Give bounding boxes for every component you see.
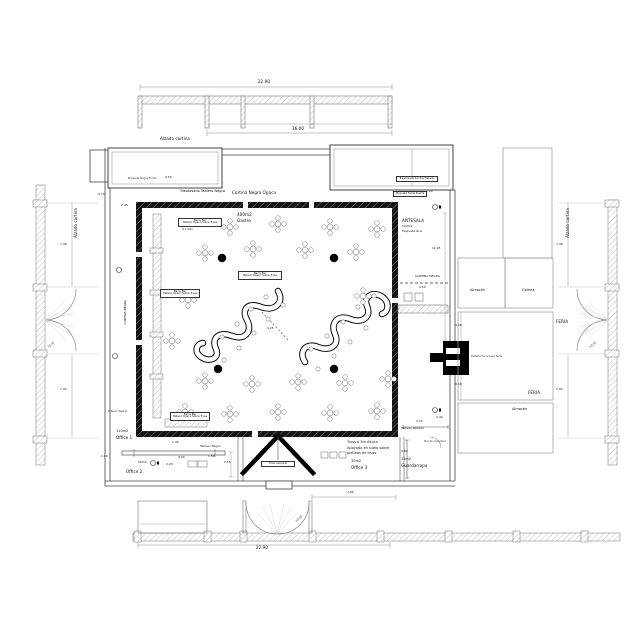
dim-bottom-width: 22.90 (256, 546, 268, 551)
label-alzado-cortina-right: Alzado cortina (566, 208, 571, 238)
label-moqueta-puerta: Moqueta Ferial Puerta (393, 191, 427, 197)
dim-900: 9.00 (178, 456, 185, 459)
note-tl-room: Moqueta Negra Fondo (128, 178, 157, 181)
label-feria-1: FERIA (556, 320, 568, 325)
room-almacen-1: Almacén (470, 289, 485, 293)
dim-100: 1.00 (101, 455, 108, 458)
dim-top-inner: 16.00 (292, 127, 304, 132)
dim-425: 4.25 (267, 327, 274, 330)
label-trasdosado-contra: Trasdosado Contrachapado (396, 176, 438, 182)
bar-label-sub: Tablero Opaco Sobre Truss (240, 275, 280, 278)
dim-215: 2.15 (224, 461, 231, 464)
inner-bar-bands (150, 214, 207, 427)
label-cortina-negra-left: CORTINA NEGRA (124, 300, 127, 325)
bar-label-1: Barra Bar Tablero Opaco Sobre Truss (178, 218, 222, 227)
dim-top-width: 22.90 (258, 80, 270, 85)
feria-rooms (458, 148, 553, 453)
room-office2-area: 50m2 (138, 461, 147, 464)
room-gastro: Gastro (237, 219, 251, 224)
stool-symbols (220, 294, 376, 371)
dim-150: 1.50 (208, 455, 215, 458)
dim-730-r2: 7.30 (556, 388, 563, 391)
room-antesala: ANTESALA (402, 219, 424, 224)
dim-470: 4.70 (416, 420, 423, 423)
note-truss-3: pletinas de truss (347, 452, 376, 456)
top-right-room (330, 145, 453, 190)
label-tablero-pintado: Tablero Pintado (401, 427, 424, 430)
dim-450: 4.50 (419, 286, 426, 289)
access-gate-symbol (430, 341, 469, 375)
label-puerta-corredera: Puerta corredera (424, 441, 446, 444)
bar-label-4: Barra Bar Tablero Opaco Sobre Truss (170, 412, 210, 421)
note-truss-2: Apoyado en suelo sobre (347, 447, 389, 451)
dim-380: 3.80 (401, 450, 408, 453)
dim-730-l1: 7.30 (60, 243, 67, 246)
room-office1: Office 1 (116, 436, 132, 441)
right-curtain-elevation (558, 200, 619, 465)
dim-245: 2.45 (121, 204, 128, 207)
dim-1125: 11.25 (432, 247, 441, 250)
dim-240: 2.40 (436, 416, 443, 419)
dim-730-l2: 7.30 (60, 388, 67, 391)
label-cortina-negra-opaca: Cortina Negra Opaca (232, 191, 276, 196)
label-feria-2: FERIA (528, 391, 540, 396)
a-frame-truss (243, 436, 313, 473)
label-truss-box: Truss apoyado (261, 461, 295, 467)
dim-300-a: 3.00 (455, 324, 462, 327)
dim-950: 9.50 (165, 176, 172, 179)
label-tablero-tapado: Tablero Tapado (108, 411, 127, 414)
room-guardarropa-area: 15m2 (401, 458, 411, 462)
label-tablero-negro: Tablero Negro (200, 445, 221, 448)
label-trasdosado-negro: Trasdosado Tablero Negro (180, 190, 225, 194)
dim-220: 2.20 (166, 463, 173, 466)
room-gastro-area: 400m2 (237, 213, 252, 218)
bar-label-3: Barra Bar Tablero Opaco Sobre Truss (160, 289, 200, 298)
room-office3: Office 3 (351, 466, 367, 471)
dim-730-r1: 7.30 (556, 243, 563, 246)
room-office3-area: 30m2 (351, 460, 361, 464)
room-guardarropa: Guardarropa (401, 464, 427, 469)
note-gate: Plataforma acceso Feria (471, 356, 502, 359)
sinuous-bar-counters (197, 291, 388, 362)
plan-linework (0, 0, 640, 640)
bar-label-height: H 1.00m (182, 229, 193, 232)
room-office2: Office 2 (126, 470, 142, 475)
top-left-room (108, 148, 222, 188)
bar-label-sub: Tablero Opaco Sobre Truss (162, 293, 198, 296)
room-office1-area: 110m2 (116, 430, 128, 434)
label-alzado-cortina-left: Alzado cortina (74, 208, 79, 238)
dim-300-b: 3.00 (455, 383, 462, 386)
dim-760: 7.60 (347, 491, 354, 494)
room-almacen-2: Almacén (512, 408, 527, 412)
dim-140: 1.40 (172, 441, 179, 444)
note-truss-1: Truss a 3m Altura (347, 441, 378, 445)
dim-120: 1.20 (426, 190, 433, 193)
room-galeria: Galería (522, 289, 535, 293)
label-cortina-negra: CORTINA NEGRA (415, 275, 440, 278)
room-antesala-floor: Moqueta Gris (402, 230, 422, 233)
floor-plan-canvas: 22.90 16.00 Alzado cortina 9.50 Moqueta … (0, 0, 640, 640)
bar-label-sub: Tablero Opaco Sobre Truss (180, 222, 220, 225)
top-truss-elevation (138, 96, 392, 128)
dim-370: 3.70 (98, 193, 105, 196)
bottom-curtain-elevation (133, 494, 620, 548)
label-alzado-cortina-top: Alzado cortina (160, 137, 190, 142)
bar-label-2: Barra Bar Tablero Opaco Sobre Truss (238, 271, 282, 280)
bar-label-sub: Tablero Opaco Sobre Truss (172, 416, 208, 419)
left-curtain-elevation (33, 185, 98, 465)
room-antesala-area: 100m2 (402, 225, 413, 228)
